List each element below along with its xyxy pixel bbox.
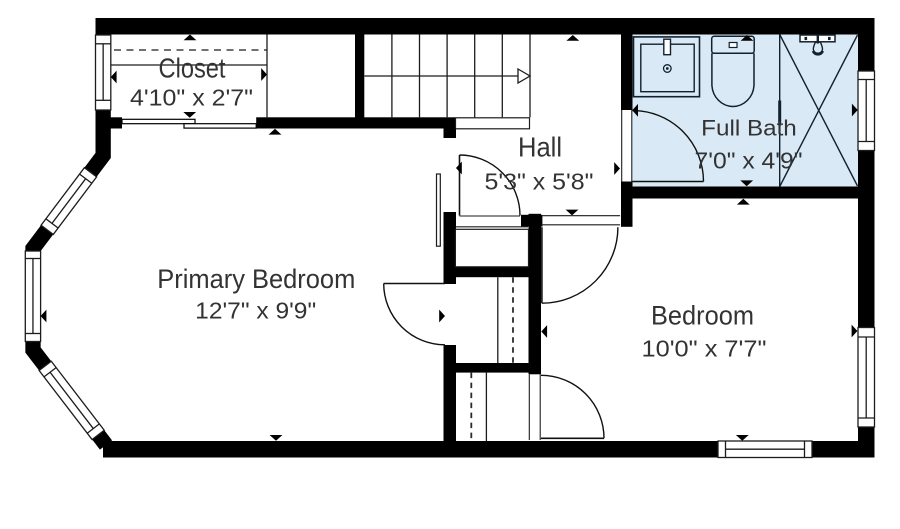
svg-text:Bedroom: Bedroom [651, 301, 754, 331]
svg-text:5'3" x 5'8": 5'3" x 5'8" [485, 169, 594, 195]
svg-text:4'10" x 2'7": 4'10" x 2'7" [130, 85, 253, 111]
svg-text:7'0" x 4'9": 7'0" x 4'9" [695, 148, 803, 174]
svg-text:10'0" x 7'7": 10'0" x 7'7" [642, 336, 767, 362]
svg-text:12'7" x 9'9": 12'7" x 9'9" [195, 298, 316, 324]
svg-text:Closet: Closet [159, 53, 226, 84]
svg-text:Full Bath: Full Bath [701, 115, 797, 140]
svg-text:Hall: Hall [518, 132, 562, 163]
svg-text:Primary Bedroom: Primary Bedroom [157, 264, 355, 294]
